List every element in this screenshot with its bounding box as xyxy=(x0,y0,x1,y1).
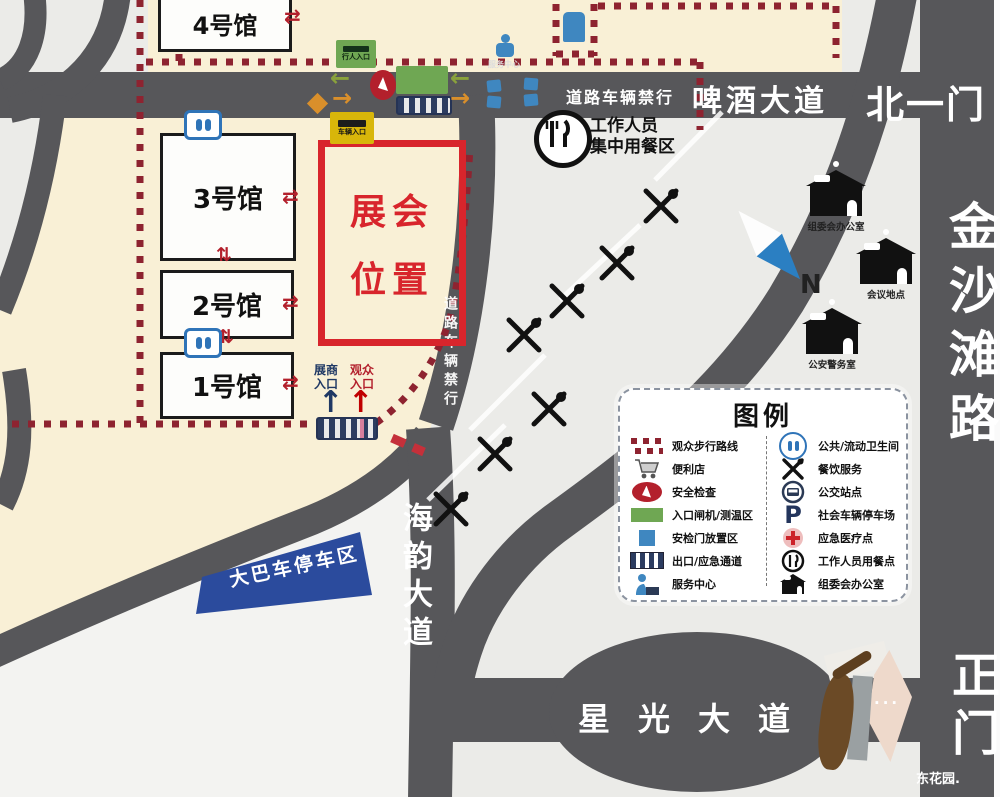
staff-dining-icon xyxy=(534,110,592,168)
restroom-icon xyxy=(184,110,222,140)
staff-dining-label: 工作人员 集中用餐区 xyxy=(590,116,675,159)
legend-label: 安全检查 xyxy=(672,484,716,500)
legend-item: 工作人员用餐点 xyxy=(776,549,899,572)
crosswalk-icon xyxy=(316,417,378,440)
service-desk-icon xyxy=(630,573,664,595)
exhibition-location-line2: 位置 xyxy=(350,251,434,303)
building-organizer-office: 组委会办公室 xyxy=(806,170,866,233)
exhibition-location-box: 展会 位置 xyxy=(318,140,466,346)
exhibition-location-line1: 展会 xyxy=(350,183,434,235)
medical-icon xyxy=(776,528,810,548)
building-label: 会议地点 xyxy=(856,287,916,301)
legend-panel: 图例 观众步行路线 便利店 安全检查 入口闸机/测温区 xyxy=(618,388,908,602)
office-icon xyxy=(806,170,866,216)
office-icon xyxy=(776,574,810,594)
security-door-icon xyxy=(630,530,664,546)
transfer-arrow-vertical-icon: ⇅ xyxy=(216,246,232,265)
hall-3-label: 3号馆 xyxy=(193,179,263,216)
legend-label: 入口闸机/测温区 xyxy=(672,507,753,523)
staff-dining-icon xyxy=(776,549,810,573)
cart-icon xyxy=(630,458,664,480)
service-desk-icon xyxy=(496,34,514,58)
gate-label-north-gate-1: 北一门 xyxy=(866,74,986,129)
legend-item: 观众步行路线 xyxy=(630,434,753,457)
venue-map: 道路车辆禁行 啤酒大道 北一门 金沙滩路 正门 海韵大道 道路车辆禁行 星光大道… xyxy=(0,0,1000,797)
gate-booth-icon xyxy=(563,12,585,42)
legend-label: 社会车辆停车场 xyxy=(818,507,895,523)
transfer-arrow-icon: ⇄ xyxy=(282,292,299,312)
bus-stop-icon xyxy=(776,480,810,504)
hall-3: 3号馆 xyxy=(160,133,296,261)
legend-label: 公共/流动卫生间 xyxy=(818,438,899,454)
service-point-label: 服务中心 xyxy=(488,59,520,70)
entry-gate-icon xyxy=(630,508,664,522)
visitor-arrow-up-icon: ↑ xyxy=(348,388,373,418)
legend-label: 观众步行路线 xyxy=(672,438,738,454)
service-figure-head xyxy=(501,34,510,43)
legend-right-column: 公共/流动卫生间 餐饮服务 公交站点 P 社会车辆停车场 应急医疗点 xyxy=(776,434,899,595)
road-label-beer-avenue: 啤酒大道 xyxy=(692,76,828,120)
legend-item: 公共/流动卫生间 xyxy=(776,434,899,457)
dining-x-icon xyxy=(776,457,810,481)
exhibitor-entrance-line1: 展商 xyxy=(314,364,338,378)
legend-label: 餐饮服务 xyxy=(818,461,862,477)
legend-label: 工作人员用餐点 xyxy=(818,553,895,569)
legend-title: 图例 xyxy=(620,396,906,433)
road-label-jinshatan: 金沙滩路 xyxy=(934,200,1000,456)
crosswalk-pink-stripe xyxy=(360,419,364,438)
restroom-icon xyxy=(184,328,222,358)
legend-item: P 社会车辆停车场 xyxy=(776,503,899,526)
legend-item: 安全检查 xyxy=(630,480,753,503)
hall-4: 4号馆 xyxy=(158,0,292,52)
exhibitor-arrow-up-icon: ↑ xyxy=(318,388,343,418)
visitor-entrance-line1: 观众 xyxy=(350,364,374,378)
security-door-icon xyxy=(524,93,539,106)
gate-label-main-gate: 正门 xyxy=(936,650,1000,766)
arrow-right-icon: → xyxy=(450,84,470,112)
road-label-no-vehicles: 道路车辆禁行 xyxy=(566,84,674,108)
entry-gate-area xyxy=(396,66,448,94)
dining-x-icon xyxy=(640,185,682,227)
security-check-icon xyxy=(630,482,664,502)
legend-label: 组委会办公室 xyxy=(818,576,884,592)
dining-x-icon xyxy=(503,314,545,356)
yellow-entrance-sign: 车辆入口 xyxy=(330,112,374,144)
staff-dining-line2: 集中用餐区 xyxy=(590,137,675,158)
arrow-right-icon: → xyxy=(332,84,352,112)
sign-pictogram xyxy=(343,46,369,52)
transfer-arrow-icon: ⇄ xyxy=(282,186,299,206)
legend-label: 服务中心 xyxy=(672,576,716,592)
parking-icon: P xyxy=(776,503,810,527)
transfer-arrow-icon: ⇄ xyxy=(284,6,301,26)
staff-dining-line1: 工作人员 xyxy=(590,116,675,137)
restroom-icon xyxy=(776,432,810,460)
hall-2-label: 2号馆 xyxy=(192,286,262,323)
security-door-icon xyxy=(487,95,502,108)
legend-label: 出口/应急通道 xyxy=(672,553,742,569)
legend-item: 入口闸机/测温区 xyxy=(630,503,753,526)
building-label: 组委会办公室 xyxy=(806,219,866,233)
hall-1-label: 1号馆 xyxy=(192,367,262,404)
legend-label: 安检门放置区 xyxy=(672,530,738,546)
crosswalk-icon xyxy=(396,96,452,115)
dotted-route-icon xyxy=(630,436,664,456)
dining-x-icon xyxy=(474,433,516,475)
dining-x-icon xyxy=(528,388,570,430)
legend-left-column: 观众步行路线 便利店 安全检查 入口闸机/测温区 安检门放置区 xyxy=(630,434,753,595)
service-figure-body xyxy=(496,43,514,57)
corner-watermark: 东花园. xyxy=(916,768,960,787)
legend-item: 组委会办公室 xyxy=(776,572,899,595)
legend-item: 服务中心 xyxy=(630,572,753,595)
yellow-sign-label: 车辆入口 xyxy=(338,129,366,137)
legend-divider xyxy=(766,436,767,586)
office-icon xyxy=(856,238,916,284)
dining-x-icon xyxy=(430,488,472,530)
road-label-starlight: 星光大道 xyxy=(578,694,818,740)
exit-stripes-icon xyxy=(630,552,664,569)
hall-1: 1号馆 xyxy=(160,352,294,419)
legend-item: 出口/应急通道 xyxy=(630,549,753,572)
transfer-arrow-icon: ⇄ xyxy=(282,372,299,392)
sculpture-dots: ··· xyxy=(874,694,900,712)
security-door-icon xyxy=(524,78,539,91)
hall-4-label: 4号馆 xyxy=(193,6,258,41)
legend-label: 便利店 xyxy=(672,461,705,477)
dining-x-icon xyxy=(596,242,638,284)
green-sign-label: 行人入口 xyxy=(342,54,370,62)
building-police-office: 公安警务室 xyxy=(802,308,862,371)
dining-x-icon xyxy=(546,280,588,322)
building-label: 公安警务室 xyxy=(802,357,862,371)
sign-pictogram xyxy=(338,120,366,127)
gate-sculpture-image: ··· xyxy=(816,646,916,782)
security-check-icon xyxy=(370,70,396,100)
compass-n-label: N xyxy=(800,270,822,300)
building-conference: 会议地点 xyxy=(856,238,916,301)
legend-label: 应急医疗点 xyxy=(818,530,873,546)
security-figure xyxy=(378,77,388,91)
office-icon xyxy=(802,308,862,354)
security-door-icon xyxy=(486,79,501,92)
legend-item: 公交站点 xyxy=(776,480,899,503)
legend-item: 餐饮服务 xyxy=(776,457,899,480)
legend-label: 公交站点 xyxy=(818,484,862,500)
legend-item: 应急医疗点 xyxy=(776,526,899,549)
legend-item: 安检门放置区 xyxy=(630,526,753,549)
legend-item: 便利店 xyxy=(630,457,753,480)
